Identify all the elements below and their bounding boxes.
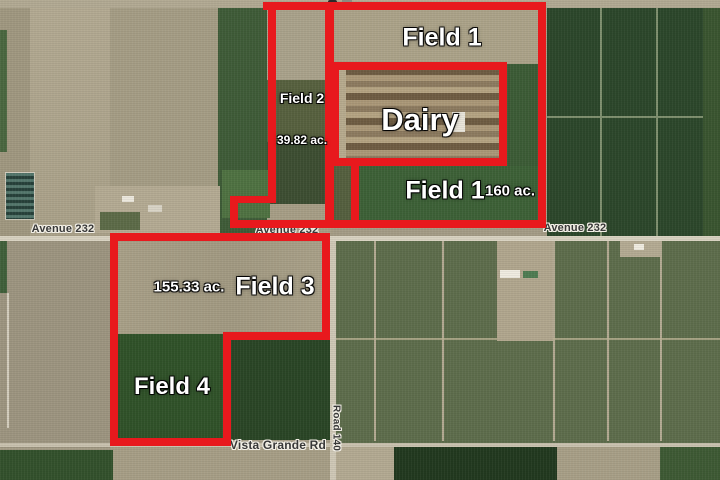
lane-line: [7, 293, 9, 428]
boundary-field4-right: [223, 332, 231, 444]
orchard-lane: [547, 116, 720, 118]
boundary-avenue-bottom: [230, 220, 546, 228]
orchard-lane: [600, 8, 602, 236]
farm-building: [122, 196, 134, 202]
field2-trees: [267, 142, 333, 204]
boundary-field3-left: [110, 233, 118, 446]
boundary-field1-step: [351, 158, 359, 228]
farm-building: [148, 205, 162, 212]
field2-acreage-label: 39.82 ac.: [277, 133, 327, 147]
field2-label: Field 2: [280, 90, 324, 106]
vineyard-lane: [442, 241, 444, 441]
field-patch: [660, 447, 720, 480]
orchard-block: [0, 450, 113, 480]
orchard-lane: [656, 8, 658, 236]
vineyard-lane: [607, 241, 609, 441]
orchard-block: [547, 8, 720, 236]
field3-label: Field 3: [235, 273, 314, 302]
boundary-field4-bottom: [110, 438, 231, 446]
vineyard-lane: [660, 241, 662, 441]
boundary-field2-left: [268, 2, 276, 202]
orchard-strip: [703, 8, 720, 236]
farm-building: [634, 244, 644, 250]
boundary-field3-right: [322, 233, 330, 340]
field-patch: [0, 241, 110, 448]
boundary-field3-step-h: [223, 332, 330, 340]
farmstead: [497, 241, 553, 341]
field1-bottom-label: Field 1: [405, 177, 484, 206]
field-patch: [557, 447, 660, 480]
road-avenue232: [0, 236, 720, 241]
road-vista-grande: [0, 443, 720, 447]
field3-acreage-label: 155.33 ac.: [154, 279, 225, 296]
orchard-block: [231, 340, 330, 440]
field-patch: [548, 0, 720, 8]
dairy-label: Dairy: [381, 102, 459, 138]
green-sliver: [0, 30, 7, 152]
vista-grande-rd-label: Vista Grande Rd: [230, 438, 326, 452]
field1-top-label: Field 1: [402, 24, 481, 53]
avenue232-label-left: Avenue 232: [32, 223, 95, 235]
field4-label: Field 4: [134, 373, 210, 401]
solar-array: [5, 172, 35, 220]
farm-building: [500, 270, 520, 278]
field2-bare: [267, 2, 333, 80]
vineyard-lane: [374, 241, 376, 441]
satellite-map: Field 1 Field 2 39.82 ac. Dairy Field 1 …: [0, 0, 720, 480]
boundary-field3-top: [110, 233, 330, 241]
road-140-label: Road 140: [331, 405, 342, 451]
farm-trees: [100, 212, 140, 230]
green-sliver: [0, 241, 7, 293]
farmstead: [336, 447, 394, 480]
orchard-block: [394, 447, 557, 480]
vineyard-lane: [553, 241, 555, 441]
farm-building: [523, 271, 538, 278]
field1-acreage-label: 160 ac.: [485, 183, 535, 200]
boundary-field1-right: [538, 2, 546, 228]
avenue232-label-right: Avenue 232: [544, 222, 607, 234]
boundary-top-edge: [263, 2, 546, 10]
